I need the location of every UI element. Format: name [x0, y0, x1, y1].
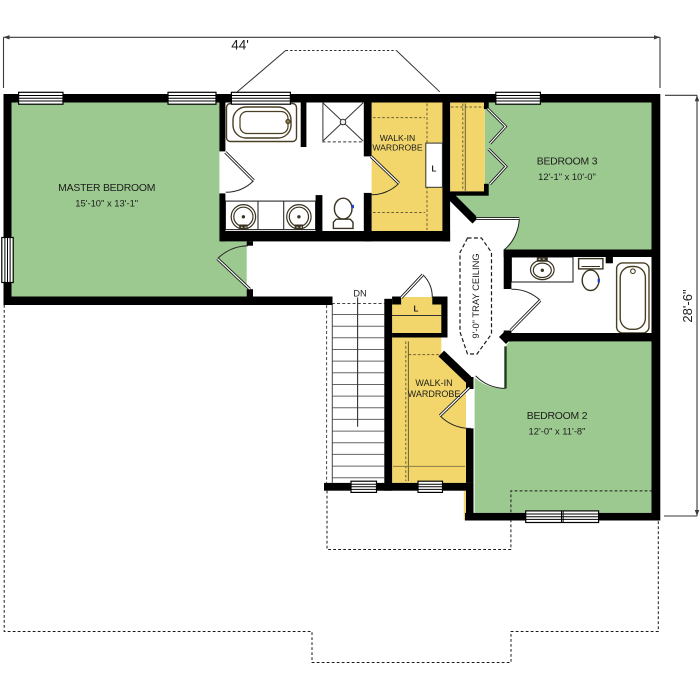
svg-text:WALK-IN: WALK-IN: [380, 133, 416, 143]
svg-text:15'-10" x 13'-1": 15'-10" x 13'-1": [75, 198, 138, 209]
svg-text:BEDROOM 3: BEDROOM 3: [537, 157, 598, 168]
svg-text:9'-0" TRAY CEILING: 9'-0" TRAY CEILING: [470, 253, 481, 338]
svg-text:BEDROOM 2: BEDROOM 2: [527, 411, 588, 422]
svg-text:L: L: [414, 305, 419, 314]
svg-text:L: L: [432, 165, 437, 174]
svg-text:DN: DN: [353, 289, 366, 299]
svg-text:MASTER BEDROOM: MASTER BEDROOM: [58, 183, 155, 194]
svg-text:12'-1" x 10'-0": 12'-1" x 10'-0": [538, 171, 596, 182]
svg-text:44': 44': [231, 38, 249, 53]
svg-text:12'-0" x 11'-8": 12'-0" x 11'-8": [529, 426, 586, 437]
svg-text:28'-6": 28'-6": [680, 289, 695, 323]
svg-text:WALK-IN: WALK-IN: [415, 378, 452, 388]
svg-text:WARDROBE: WARDROBE: [408, 389, 461, 399]
svg-text:WARDROBE: WARDROBE: [372, 142, 423, 152]
